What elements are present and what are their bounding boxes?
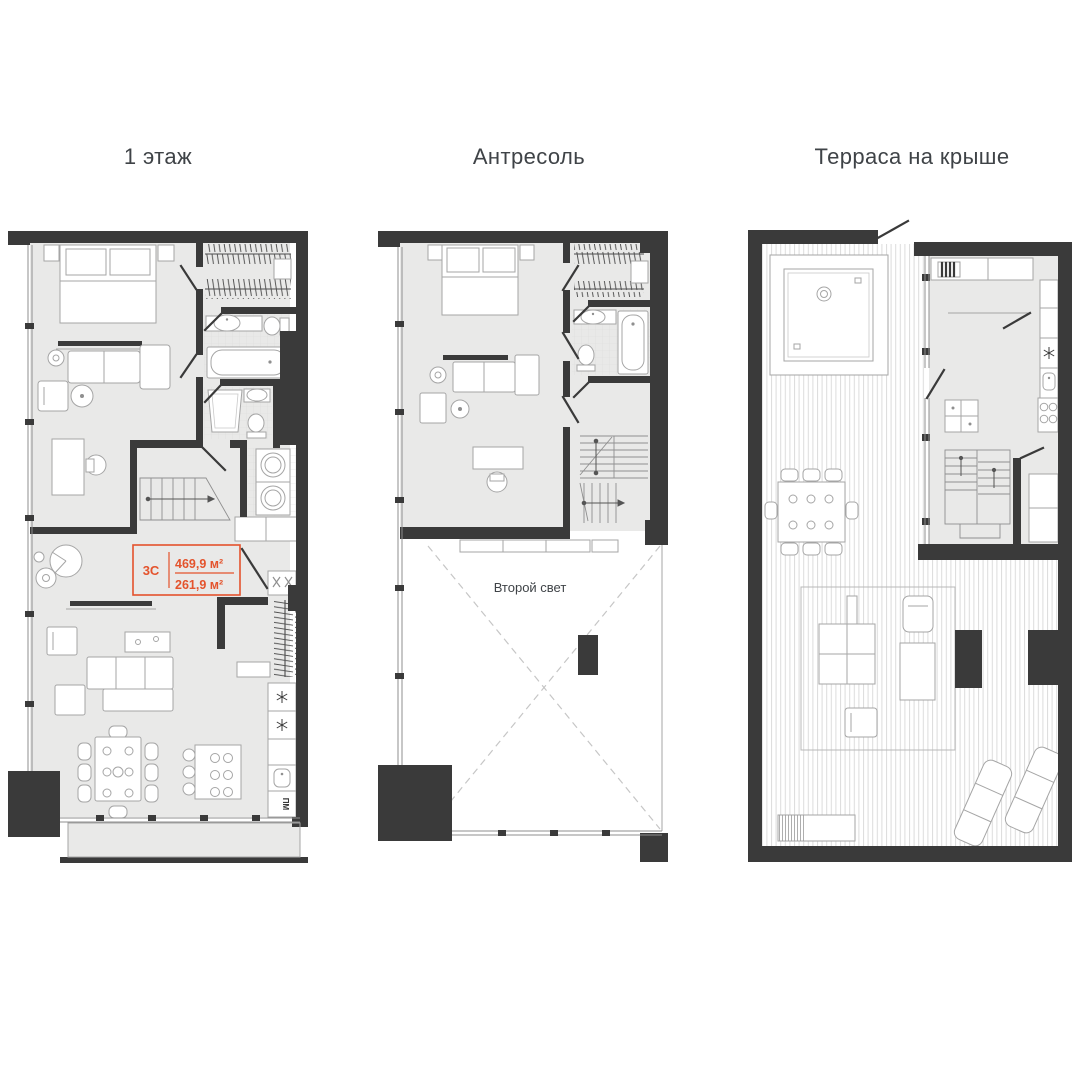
toilet xyxy=(248,414,264,432)
sofa xyxy=(87,657,173,689)
side-table xyxy=(48,350,64,366)
jacuzzi xyxy=(770,255,888,375)
desk xyxy=(52,439,84,495)
toilet xyxy=(264,317,280,335)
side-table xyxy=(430,367,446,383)
outdoor-dining xyxy=(765,469,858,555)
void-label: Второй свет xyxy=(494,580,567,595)
armchair xyxy=(47,627,77,655)
armchair xyxy=(420,393,446,423)
sink xyxy=(247,389,267,401)
column xyxy=(955,630,982,688)
armchair xyxy=(55,685,85,715)
glass-railing xyxy=(460,540,590,552)
windows xyxy=(925,256,929,544)
column xyxy=(578,635,598,675)
coffee-table xyxy=(125,632,170,652)
cabinet xyxy=(268,739,296,765)
dining-table xyxy=(95,737,141,801)
tv-panel xyxy=(70,601,152,606)
floorplan-sheet: 1 этаж Антресоль Терраса на крыше xyxy=(0,0,1080,1080)
nightstand xyxy=(158,245,174,261)
sink xyxy=(581,310,605,324)
pouf xyxy=(845,708,877,737)
unit-area-secondary: 261,9 м² xyxy=(175,578,223,592)
storage-counter xyxy=(1029,474,1058,508)
toilet xyxy=(578,345,594,365)
floorplan-mezzanine: Второй свет xyxy=(378,231,668,862)
plan-title-mezzanine: Антресоль xyxy=(379,144,679,170)
roof-room xyxy=(929,256,1058,544)
shelf xyxy=(274,259,291,279)
plant xyxy=(36,568,56,588)
unit-code: 3C xyxy=(143,563,160,578)
floorplan-floor1: ПМ xyxy=(8,231,308,863)
shelf xyxy=(237,662,270,677)
balcony xyxy=(68,823,300,857)
armchair xyxy=(38,381,68,411)
counter xyxy=(1040,280,1058,338)
dishwasher-label: ПМ xyxy=(281,798,290,811)
storage-counter xyxy=(1029,508,1058,542)
plan-title-floor1: 1 этаж xyxy=(8,144,308,170)
coffee-table xyxy=(900,643,935,700)
floorplan-roof-terrace xyxy=(748,218,1072,862)
desk xyxy=(473,447,523,469)
void-area: Второй свет xyxy=(428,540,662,831)
armchair xyxy=(903,596,933,632)
unit-area-label: 3C 469,9 м² 261,9 м² xyxy=(133,545,240,595)
dining-table xyxy=(778,482,845,542)
bathroom xyxy=(206,315,289,378)
shelf xyxy=(631,261,648,283)
tv-panel xyxy=(58,341,142,346)
nightstand xyxy=(520,245,534,260)
hob xyxy=(1038,398,1058,432)
tv-panel xyxy=(443,355,508,360)
nightstand xyxy=(428,245,442,260)
bathtub xyxy=(207,347,289,378)
unit-area-total: 469,9 м² xyxy=(175,557,223,571)
column xyxy=(1028,630,1058,685)
bench xyxy=(778,815,855,841)
nightstand xyxy=(44,245,59,261)
plan-title-roof: Терраса на крыше xyxy=(762,144,1062,170)
